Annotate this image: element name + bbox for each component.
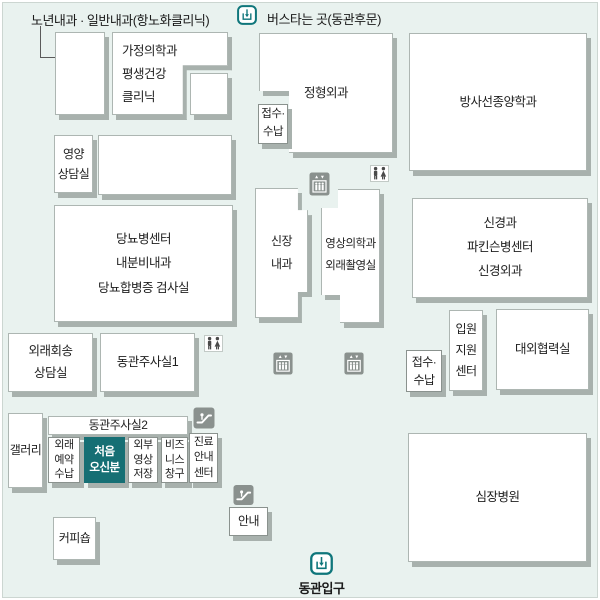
room-external-imaging-storage: 외부영상저장 — [128, 437, 158, 483]
room-label-line: 커피숍 — [59, 528, 91, 550]
annotation-connector-horizontal — [40, 57, 56, 58]
room-label-line: 외래촬영실 — [325, 256, 375, 278]
room-label-line: 수납 — [263, 124, 283, 142]
room-label-line: 방사선종양학과 — [459, 91, 536, 114]
room-label-line: 영상 — [133, 453, 152, 468]
room-gallery: 갤러리 — [8, 413, 43, 488]
restroom-icon — [204, 335, 223, 352]
annotation-connector-vertical — [40, 26, 41, 58]
room-label-line: 안내 — [238, 514, 259, 530]
room-label-line: 오신분 — [89, 460, 119, 476]
room-nutrition-counseling: 영양상담실 — [54, 135, 93, 193]
room-label-line: 신경외과 — [478, 260, 522, 284]
room-label-line: 동관주사실2 — [89, 418, 148, 432]
room-label-line: 당뇨합병증 검사실 — [98, 276, 189, 300]
room-injection-room-1: 동관주사실1 — [100, 333, 195, 392]
elevator-icon — [272, 352, 294, 375]
room-label-line: 센터 — [455, 361, 476, 382]
room-senior-internal-medicine — [55, 32, 105, 115]
room-label-line: 수납 — [413, 371, 434, 389]
room-label-line: 외부 — [133, 438, 152, 453]
room-label-line: 니스 — [165, 453, 184, 468]
room-information-desk: 안내 — [229, 507, 268, 536]
escalator-icon — [233, 484, 254, 506]
room-neurology-parkinson-neurosurgery: 신경과파킨슨병센터신경외과 — [412, 198, 588, 298]
hospital-floor-map: 노년내과 · 일반내과(항노화클리닉) 버스타는 곳(동관후문) 동관입구 가정… — [0, 0, 600, 600]
room-outpatient-reservation-payment: 외래예약수납 — [48, 437, 80, 483]
room-label-line: 외래 — [54, 438, 73, 453]
bus-stop-label: 버스타는 곳(동관후문) — [267, 9, 381, 28]
room-label-line: 입원 — [455, 319, 476, 340]
room-business-counter: 비즈니스창구 — [161, 437, 188, 483]
room-label-line: 영상의학과 — [325, 234, 375, 256]
room-label-line: 처음 — [94, 444, 114, 460]
elevator-icon — [343, 352, 365, 375]
room-admission-support-center: 입원지원센터 — [449, 310, 483, 391]
room-label-line: 센터 — [194, 466, 213, 481]
room-label-line: 가정의학과 — [122, 40, 177, 63]
room-heart-hospital: 심장병원 — [408, 433, 587, 562]
room-label-line: 진료 — [194, 435, 213, 450]
escalator-icon — [193, 407, 215, 429]
room-label-line: 외래회송 — [28, 341, 72, 362]
room-label-line: 파킨슨병센터 — [467, 236, 533, 260]
room-label-line: 안내 — [194, 450, 213, 465]
room-label-line: 비즈 — [165, 438, 184, 453]
room-label-line: 영양 — [63, 144, 84, 164]
room-label-line: 대외협력실 — [515, 338, 570, 361]
room-external-cooperation-office: 대외협력실 — [496, 309, 589, 390]
room-label-line: 당뇨병센터 — [116, 227, 171, 251]
room-treatment-info-center: 진료안내센터 — [189, 433, 218, 483]
room-unnamed-room-small — [190, 73, 228, 115]
room-label-line: 상담실 — [34, 363, 67, 384]
room-outpatient-return-counseling: 외래회송상담실 — [8, 333, 93, 392]
room-label-line: 정형외과 — [304, 82, 348, 105]
room-label-line: 내과 — [271, 253, 292, 276]
room-label-line: 내분비내과 — [116, 251, 171, 275]
entrance-icon — [237, 5, 257, 25]
elevator-icon — [309, 172, 330, 196]
room-label-line: 저장 — [133, 467, 152, 482]
room-label-line: 접수· — [412, 353, 437, 371]
room-injection-room-2: 동관주사실2 — [48, 416, 188, 435]
room-diabetes-center: 당뇨병센터내분비내과당뇨합병증 검사실 — [54, 205, 233, 322]
room-label-line: 신장 — [271, 230, 292, 253]
room-label-line: 지원 — [455, 340, 476, 361]
room-radiation-oncology: 방사선종양학과 — [409, 33, 587, 171]
room-label-line: 창구 — [165, 467, 184, 482]
room-label-line: 신경과 — [483, 212, 516, 236]
room-wrap-nephrology: 신장내과 — [255, 188, 308, 318]
restroom-icon — [370, 165, 389, 182]
room-unnamed-room-wide — [98, 135, 232, 195]
east-entrance-label: 동관입구 — [281, 578, 362, 597]
room-nephrology: 신장내과 — [255, 188, 308, 318]
entrance-icon — [310, 552, 333, 575]
room-label-line: 동관주사실1 — [117, 351, 178, 374]
room-label-line: 갤러리 — [10, 440, 42, 462]
room-coffee-shop: 커피숍 — [53, 517, 96, 560]
room-reception-payment-1: 접수·수납 — [258, 104, 288, 144]
annotation-senior-internal-medicine: 노년내과 · 일반내과(항노화클리닉) — [31, 10, 209, 29]
room-label-line: 상담실 — [58, 164, 90, 184]
room-label-line: 평생건강 — [122, 63, 166, 86]
room-label-line: 예약 — [54, 453, 73, 468]
room-wrap-radiology-outpatient-imaging: 영상의학과외래촬영실 — [321, 189, 380, 323]
room-radiology-outpatient-imaging: 영상의학과외래촬영실 — [321, 189, 380, 323]
room-label-line: 심장병원 — [475, 486, 519, 509]
room-label-line: 수납 — [54, 467, 73, 482]
room-first-time-visitors: 처음오신분 — [84, 437, 125, 483]
room-label-line: 클리닉 — [122, 86, 155, 109]
room-reception-payment-2: 접수·수납 — [406, 350, 442, 392]
room-label-line: 접수· — [261, 106, 285, 124]
